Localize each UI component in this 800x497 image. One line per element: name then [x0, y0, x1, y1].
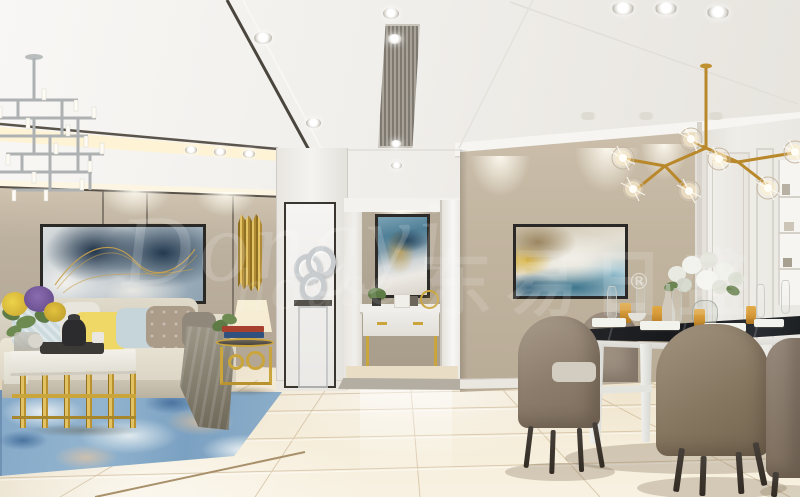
watermark-script-text-2: house	[233, 248, 401, 328]
shelf	[778, 232, 800, 234]
silver-linear-chandelier	[0, 52, 128, 252]
recessed-light	[306, 118, 321, 128]
soffit-spotlight	[185, 146, 197, 154]
side-table-gold-frame	[220, 347, 272, 385]
recessed-light	[391, 162, 402, 169]
wine-glass	[781, 280, 790, 314]
side-table-top	[216, 338, 274, 347]
shelf-decor	[784, 222, 794, 231]
ceiling-speaker	[578, 112, 598, 120]
gold-ring-detail	[246, 351, 265, 370]
recessed-light	[383, 8, 399, 19]
dining-chair	[656, 324, 770, 456]
recessed-light	[612, 2, 634, 15]
interior-photo: Dongyi house 东易日盛 ®	[0, 0, 800, 497]
soffit-spotlight	[243, 150, 255, 158]
dining-chair	[766, 338, 800, 478]
coffee-table-gold-base	[12, 370, 136, 428]
gold-ring-detail	[228, 354, 244, 370]
drawer-handle	[377, 322, 387, 325]
recessed-light	[655, 2, 677, 15]
decor-object	[410, 296, 418, 306]
wall-wash-light	[470, 156, 530, 196]
kettle-lid	[68, 314, 80, 320]
chair-seat-cushion	[552, 362, 596, 382]
recessed-light	[387, 34, 402, 44]
recessed-light	[254, 32, 272, 44]
chandelier-candle-lights	[0, 89, 104, 201]
watermark-cjk-text: 东易日盛	[420, 225, 764, 330]
tray-reveal-line	[227, 0, 309, 150]
floor-threshold	[338, 378, 470, 390]
recessed-light	[390, 140, 402, 148]
shelf-decor	[783, 258, 792, 267]
ceiling-corner-line	[459, 0, 533, 148]
recessed-light	[707, 6, 729, 19]
shelf	[778, 268, 800, 270]
black-kettle	[62, 318, 86, 346]
white-pot	[28, 334, 43, 348]
yellow-bloom	[44, 302, 66, 322]
soffit-spotlight	[214, 148, 226, 156]
chandelier-branches	[626, 68, 793, 190]
watermark-registered-mark: ®	[628, 270, 650, 295]
floor-reflection	[360, 382, 452, 482]
gold-branch-chandelier	[600, 62, 800, 212]
cup	[92, 332, 104, 343]
